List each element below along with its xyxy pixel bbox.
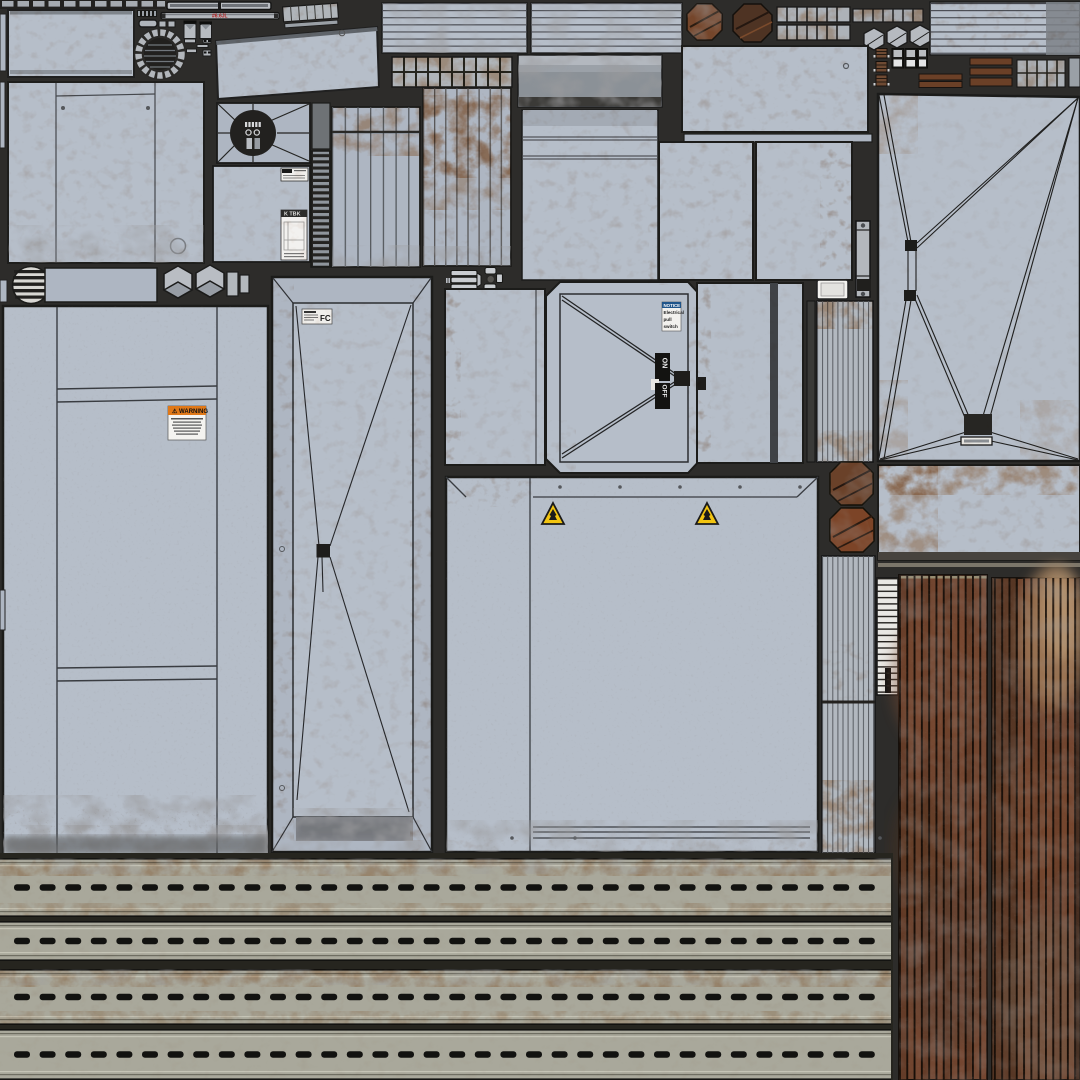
svg-text:pull: pull [664, 317, 672, 322]
svg-text:NOTICE: NOTICE [664, 303, 681, 308]
svg-text:⚠ WARNING: ⚠ WARNING [172, 408, 208, 415]
svg-text:switch: switch [664, 324, 678, 329]
svg-text:Electrical: Electrical [664, 310, 684, 315]
svg-text:ON: ON [661, 358, 668, 369]
svg-text:#6.6JL: #6.6JL [212, 14, 228, 20]
svg-text:OFF: OFF [661, 385, 668, 398]
